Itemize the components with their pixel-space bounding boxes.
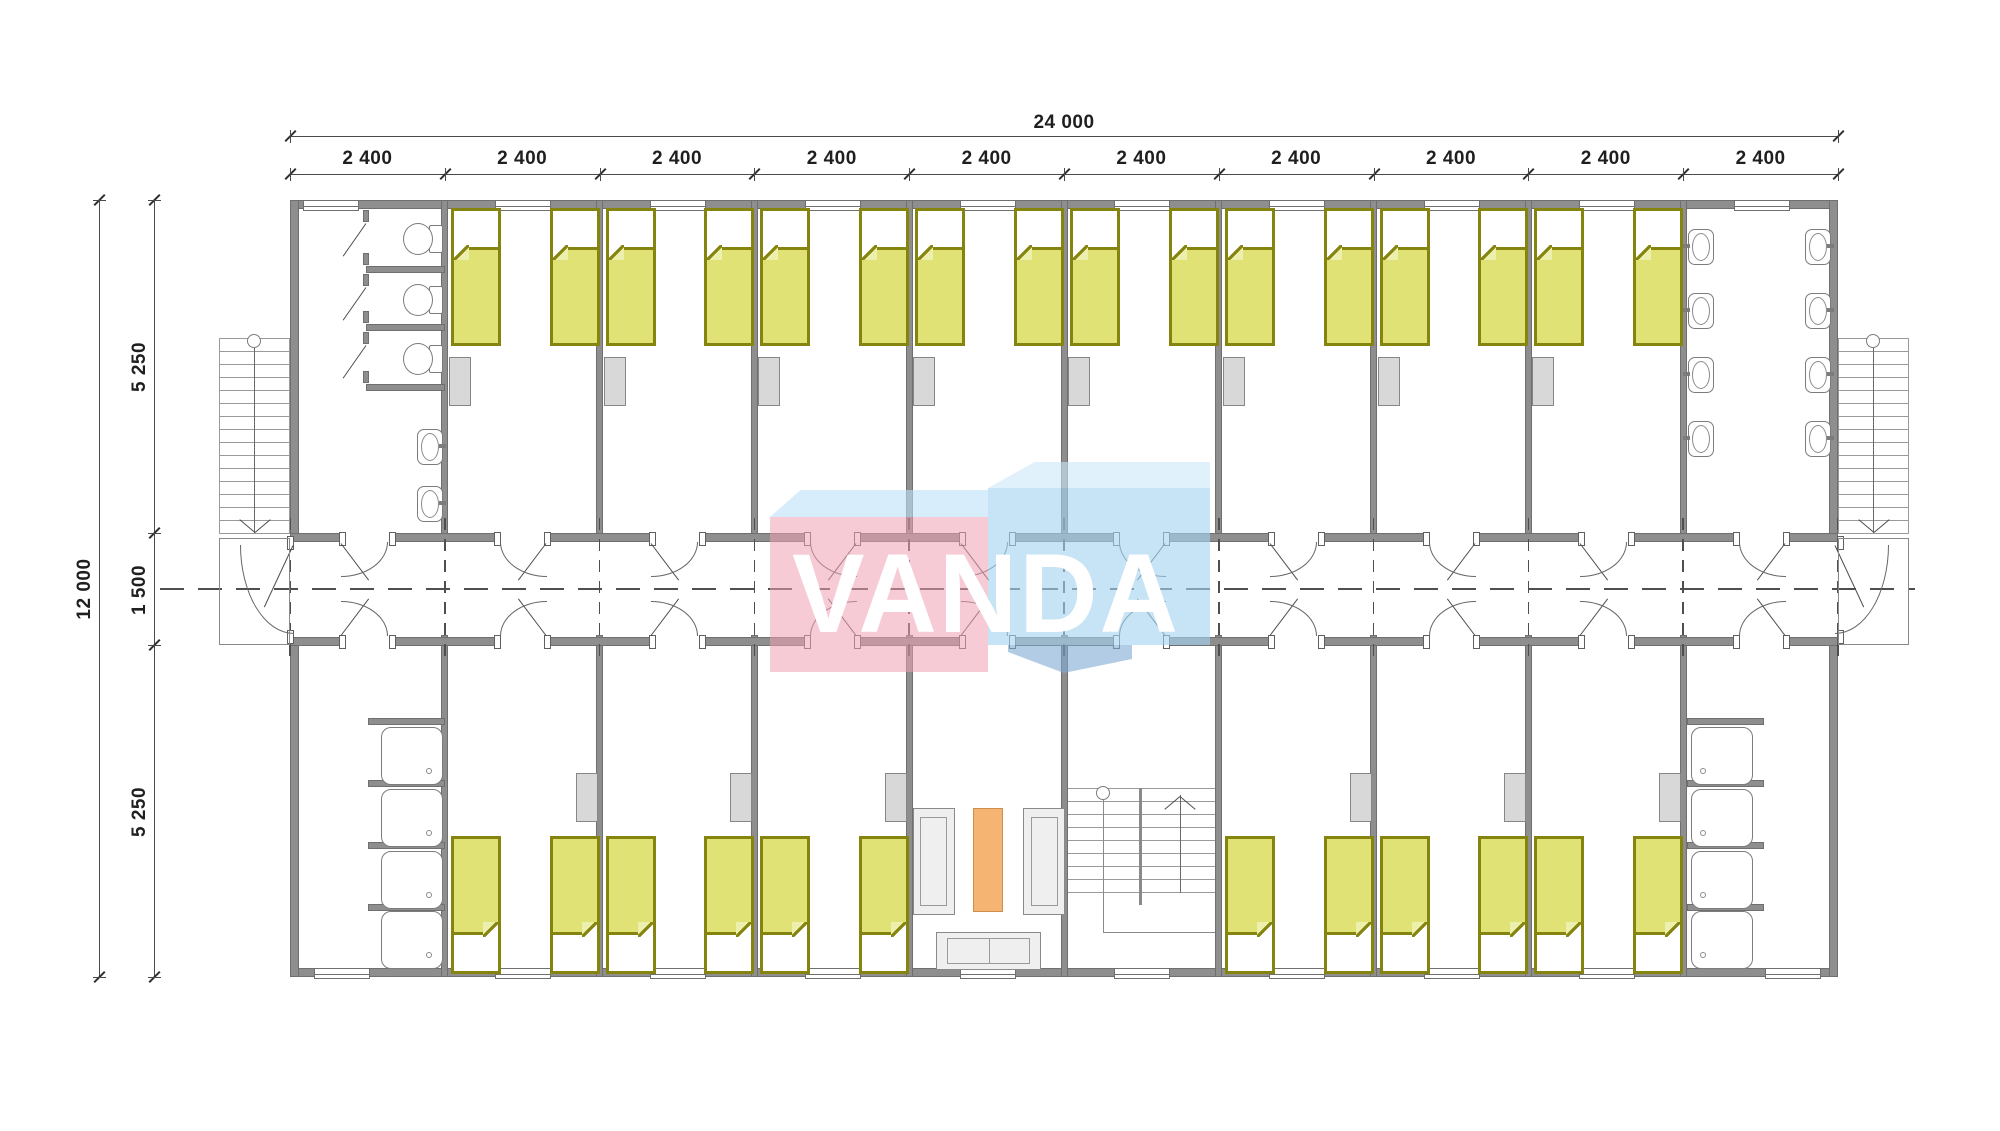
window-glass-line xyxy=(304,206,358,207)
dimension-stub xyxy=(148,977,161,978)
dimension-stub xyxy=(1219,168,1220,181)
basin-bowl xyxy=(421,490,439,518)
stair-arrow-shaft xyxy=(254,348,255,533)
window-glass-line xyxy=(1115,206,1169,207)
bed-pillow xyxy=(609,932,653,971)
bed-fold xyxy=(1537,245,1552,260)
wardrobe-icon xyxy=(730,773,752,822)
window-icon xyxy=(1579,200,1635,211)
basin-bowl xyxy=(1692,297,1710,325)
basin-faucet xyxy=(1827,244,1834,248)
door-jamb xyxy=(1318,532,1325,546)
dimension-stub xyxy=(1374,168,1375,181)
bed-icon xyxy=(704,208,754,346)
door-jamb xyxy=(544,635,551,649)
bed-fold xyxy=(1356,922,1371,937)
bed-fold xyxy=(763,245,778,260)
window-glass-line xyxy=(1270,206,1324,207)
stair-rail xyxy=(289,338,290,533)
dimension-stub xyxy=(1838,168,1839,181)
stair-arrow-head xyxy=(1164,796,1180,810)
bed-fold xyxy=(1566,922,1581,937)
shower-tray-icon xyxy=(1691,851,1753,909)
window-icon xyxy=(1765,968,1821,979)
wall xyxy=(290,533,341,542)
axis-crossline xyxy=(754,518,756,660)
wardrobe-icon xyxy=(758,357,780,406)
axis-crossline xyxy=(1373,518,1375,660)
dimension-label-segment: 2 400 xyxy=(1101,148,1181,170)
dimension-label-segment: 2 400 xyxy=(1411,148,1491,170)
bed-fold xyxy=(1327,245,1342,260)
stall-front-stub xyxy=(363,332,369,344)
bed-fold xyxy=(891,922,906,937)
bed-icon xyxy=(451,208,501,346)
basin-bowl xyxy=(1692,361,1710,389)
shower-tray-icon xyxy=(381,789,443,847)
bed-icon xyxy=(760,836,810,974)
wall xyxy=(1829,637,1838,977)
dimension-line xyxy=(290,136,1838,137)
dimension-stub xyxy=(290,130,291,143)
bed-fold xyxy=(1636,245,1651,260)
bed-pillow xyxy=(1228,932,1272,971)
dimension-label-seg-left: 1 500 xyxy=(129,545,151,635)
toilet-stall-wall xyxy=(366,324,445,331)
basin-bowl xyxy=(1809,425,1827,453)
shower-tray-icon xyxy=(1691,789,1753,847)
bed-fold xyxy=(454,245,469,260)
bed-icon xyxy=(859,208,909,346)
bed-icon xyxy=(1478,208,1528,346)
wardrobe-icon xyxy=(1068,357,1090,406)
axis-crossline xyxy=(444,518,446,660)
door-arc xyxy=(1270,542,1317,577)
basin-faucet xyxy=(439,444,446,448)
shower-partition xyxy=(1687,718,1764,725)
door-jamb xyxy=(1628,635,1635,649)
sofa-divider xyxy=(989,938,990,964)
bed-icon xyxy=(1534,836,1584,974)
shower-tray-icon xyxy=(381,911,443,969)
wall xyxy=(1215,635,1222,977)
bed-icon xyxy=(704,836,754,974)
bed-icon xyxy=(1169,208,1219,346)
basin-faucet xyxy=(439,501,446,505)
axis-crossline xyxy=(1528,518,1530,660)
window-glass-line xyxy=(1766,974,1820,975)
window-glass-line xyxy=(1115,974,1169,975)
bed-icon xyxy=(760,208,810,346)
bed-fold xyxy=(582,922,597,937)
bed-icon xyxy=(1633,836,1683,974)
door-arc xyxy=(1739,601,1786,636)
door-arc xyxy=(500,542,547,577)
dimension-stub xyxy=(93,200,106,201)
bed-fold xyxy=(918,245,933,260)
window-glass-line xyxy=(1425,974,1479,975)
window-glass-line xyxy=(651,206,705,207)
dimension-stub xyxy=(600,168,601,181)
window-icon xyxy=(303,200,359,211)
stair-tread xyxy=(219,533,290,534)
bed-pillow xyxy=(553,932,597,971)
shower-drain xyxy=(1700,830,1706,836)
dimension-label-segment: 2 400 xyxy=(482,148,562,170)
shower-tray-icon xyxy=(1691,727,1753,785)
bed-fold xyxy=(483,922,498,937)
stair-newel xyxy=(247,334,261,348)
wardrobe-icon xyxy=(576,773,598,822)
toilet-stall-wall xyxy=(366,266,445,273)
door-jamb xyxy=(1578,635,1585,649)
basin-icon xyxy=(1688,229,1714,265)
bed-fold xyxy=(862,245,877,260)
bed-fold xyxy=(1017,245,1032,260)
shower-drain xyxy=(1700,892,1706,898)
door-jamb xyxy=(699,532,706,546)
stair-arrow-head xyxy=(254,519,270,533)
window-icon xyxy=(960,200,1016,211)
stall-front-stub xyxy=(363,253,369,265)
window-icon xyxy=(805,200,861,211)
window-glass-line xyxy=(651,974,705,975)
shower-tray-icon xyxy=(381,727,443,785)
wardrobe-icon xyxy=(1350,773,1372,822)
window-icon xyxy=(495,968,551,979)
bed-fold xyxy=(1481,245,1496,260)
axis-crossline xyxy=(1682,518,1684,660)
door-jamb xyxy=(649,635,656,649)
bed-fold xyxy=(736,922,751,937)
stair-rail xyxy=(1103,800,1104,933)
basin-faucet xyxy=(1683,308,1690,312)
window-icon xyxy=(1734,200,1790,211)
bed-icon xyxy=(550,208,600,346)
bed-pillow xyxy=(763,932,807,971)
armchair-seat xyxy=(920,817,947,906)
stair-newel xyxy=(1866,334,1880,348)
bed-icon xyxy=(1380,836,1430,974)
bed-icon xyxy=(1324,208,1374,346)
stair-rail xyxy=(1103,932,1215,933)
entry-landing xyxy=(219,538,290,645)
bed-icon xyxy=(606,836,656,974)
basin-icon xyxy=(1688,357,1714,393)
bed-fold xyxy=(1665,922,1680,937)
stair-arrow-head xyxy=(1858,519,1874,533)
dimension-stub xyxy=(754,168,755,181)
bed-fold xyxy=(638,922,653,937)
window-glass-line xyxy=(315,974,369,975)
window-icon xyxy=(1424,200,1480,211)
wardrobe-icon xyxy=(449,357,471,406)
bed-icon xyxy=(1633,208,1683,346)
stair-arrow-head xyxy=(239,519,255,533)
basin-bowl xyxy=(1809,233,1827,261)
window-glass-line xyxy=(1735,206,1789,207)
basin-faucet xyxy=(1683,244,1690,248)
axis-crossline xyxy=(1218,518,1220,660)
door-arc xyxy=(1270,601,1317,636)
bed-icon xyxy=(550,836,600,974)
bed-icon xyxy=(1225,836,1275,974)
shower-drain xyxy=(1700,952,1706,958)
window-glass-line xyxy=(961,206,1015,207)
bed-pillow xyxy=(1383,932,1427,971)
basin-bowl xyxy=(1809,297,1827,325)
stall-front-stub xyxy=(363,274,369,286)
basin-faucet xyxy=(1683,436,1690,440)
dimension-label-segment: 2 400 xyxy=(327,148,407,170)
stair-divider xyxy=(1139,788,1142,905)
watermark-box-pink-top xyxy=(770,490,988,517)
shower-drain xyxy=(426,768,432,774)
stall-door-leaf xyxy=(343,223,367,256)
dimension-label-segment: 2 400 xyxy=(1256,148,1336,170)
door-arc xyxy=(1429,601,1476,636)
stair-arrow-head xyxy=(1873,519,1889,533)
door-jamb xyxy=(1268,635,1275,649)
window-glass-line xyxy=(496,206,550,207)
door-arc xyxy=(1580,601,1627,636)
wardrobe-icon xyxy=(885,773,907,822)
bed-pillow xyxy=(1537,932,1581,971)
window-icon xyxy=(650,968,706,979)
stair-rail xyxy=(1838,338,1839,533)
dimension-stub xyxy=(93,977,106,978)
door-arc xyxy=(1739,542,1786,577)
window-glass-line xyxy=(806,206,860,207)
dimension-line xyxy=(99,200,100,977)
dimension-stub xyxy=(1838,130,1839,143)
window-glass-line xyxy=(496,974,550,975)
stair-rail xyxy=(219,338,220,533)
bed-fold xyxy=(1383,245,1398,260)
dimension-label-segment: 2 400 xyxy=(637,148,717,170)
dimension-stub xyxy=(445,168,446,181)
wall xyxy=(1785,637,1838,646)
dimension-label-seg-left: 5 250 xyxy=(129,767,151,857)
dimension-stub xyxy=(1683,168,1684,181)
stall-front-stub xyxy=(363,311,369,323)
bed-icon xyxy=(1380,208,1430,346)
shower-tray-icon xyxy=(1691,911,1753,969)
toilet-bowl-icon xyxy=(403,343,433,375)
bed-fold xyxy=(553,245,568,260)
stair-arrow-shaft xyxy=(1180,795,1181,893)
window-glass-line xyxy=(1580,206,1634,207)
window-icon xyxy=(650,200,706,211)
wall xyxy=(1061,635,1068,977)
bed-fold xyxy=(707,245,722,260)
wall xyxy=(290,637,341,646)
bed-fold xyxy=(1228,245,1243,260)
dimension-stub xyxy=(1064,168,1065,181)
stall-front-stub xyxy=(363,210,369,222)
door-jamb xyxy=(1423,635,1430,649)
window-icon xyxy=(805,968,861,979)
basin-faucet xyxy=(1827,372,1834,376)
coffee-table xyxy=(973,808,1003,912)
stair-tread xyxy=(1838,533,1909,534)
floor-plan: VANDA 24 0002 4002 4002 4002 4002 4002 4… xyxy=(0,0,2000,1131)
wardrobe-icon xyxy=(1378,357,1400,406)
bed-icon xyxy=(1478,836,1528,974)
window-glass-line xyxy=(806,974,860,975)
wall xyxy=(290,637,299,977)
bed-fold xyxy=(792,922,807,937)
window-glass-line xyxy=(1270,974,1324,975)
watermark-box-blue-top xyxy=(988,462,1210,488)
window-icon xyxy=(495,200,551,211)
bed-fold xyxy=(1412,922,1427,937)
bed-icon xyxy=(1324,836,1374,974)
stair-newel xyxy=(1096,786,1110,800)
dimension-stub xyxy=(1528,168,1529,181)
door-jamb xyxy=(389,635,396,649)
door-arc xyxy=(1429,542,1476,577)
dimension-stub xyxy=(148,645,161,646)
bed-fold xyxy=(1073,245,1088,260)
shower-drain xyxy=(426,830,432,836)
shower-drain xyxy=(1700,768,1706,774)
door-jamb xyxy=(494,635,501,649)
window-icon xyxy=(314,968,370,979)
door-jamb xyxy=(1628,532,1635,546)
shower-drain xyxy=(426,952,432,958)
wardrobe-icon xyxy=(604,357,626,406)
bed-icon xyxy=(1070,208,1120,346)
basin-icon xyxy=(1688,293,1714,329)
door-jamb xyxy=(1733,635,1740,649)
door-arc xyxy=(1580,542,1627,577)
door-arc xyxy=(341,601,388,636)
bed-pillow xyxy=(1481,932,1525,971)
wall xyxy=(290,200,299,542)
dimension-label-segment: 2 400 xyxy=(792,148,872,170)
wardrobe-icon xyxy=(913,357,935,406)
toilet-bowl-icon xyxy=(403,284,433,316)
wall xyxy=(1785,533,1838,542)
stair-arrow-head xyxy=(1180,796,1196,810)
window-icon xyxy=(1424,968,1480,979)
window-glass-line xyxy=(1425,206,1479,207)
window-icon xyxy=(1114,200,1170,211)
door-jamb xyxy=(699,635,706,649)
stall-front-stub xyxy=(363,371,369,383)
shower-tray-icon xyxy=(381,851,443,909)
stair-arrow-shaft xyxy=(1873,348,1874,533)
dimension-label-segment: 2 400 xyxy=(947,148,1027,170)
door-jamb xyxy=(389,532,396,546)
dimension-stub xyxy=(148,200,161,201)
window-icon xyxy=(1114,968,1170,979)
door-arc xyxy=(651,542,698,577)
shower-drain xyxy=(426,892,432,898)
basin-bowl xyxy=(1692,233,1710,261)
basin-bowl xyxy=(421,433,439,461)
armchair-icon xyxy=(1023,808,1065,915)
bed-pillow xyxy=(1327,932,1371,971)
dimension-stub xyxy=(909,168,910,181)
bed-icon xyxy=(859,836,909,974)
dimension-label-total: 24 000 xyxy=(1004,112,1124,134)
entry-landing xyxy=(1838,538,1909,645)
bed-icon xyxy=(606,208,656,346)
door-jamb xyxy=(1783,635,1790,649)
shower-partition xyxy=(368,718,445,725)
dimension-line xyxy=(154,200,155,977)
basin-icon xyxy=(1688,421,1714,457)
door-jamb xyxy=(339,635,346,649)
dimension-label-segment: 2 400 xyxy=(1566,148,1646,170)
window-icon xyxy=(1269,968,1325,979)
basin-bowl xyxy=(1809,361,1827,389)
bed-pillow xyxy=(454,932,498,971)
watermark-text: VANDA xyxy=(792,538,1180,650)
toilet-bowl-icon xyxy=(403,223,433,255)
dimension-stub xyxy=(290,168,291,181)
door-jamb xyxy=(1318,635,1325,649)
bed-pillow xyxy=(707,932,751,971)
stair-rail xyxy=(1908,338,1909,533)
bed-fold xyxy=(1257,922,1272,937)
bed-pillow xyxy=(1636,932,1680,971)
basin-faucet xyxy=(1827,436,1834,440)
armchair-seat xyxy=(1031,817,1058,906)
axis-crossline xyxy=(599,518,601,660)
window-icon xyxy=(1579,968,1635,979)
dimension-label-segment: 2 400 xyxy=(1721,148,1801,170)
bed-icon xyxy=(1014,208,1064,346)
window-icon xyxy=(1269,200,1325,211)
dimension-label-seg-left: 5 250 xyxy=(129,322,151,412)
basin-faucet xyxy=(1827,308,1834,312)
bed-pillow xyxy=(862,932,906,971)
door-arc xyxy=(341,542,388,577)
dimension-stub xyxy=(148,533,161,534)
bed-icon xyxy=(1534,208,1584,346)
door-arc xyxy=(500,601,547,636)
toilet-stall-wall xyxy=(366,384,445,391)
bed-fold xyxy=(1172,245,1187,260)
bed-icon xyxy=(451,836,501,974)
bed-icon xyxy=(915,208,965,346)
door-arc xyxy=(651,601,698,636)
basin-faucet xyxy=(1683,372,1690,376)
dimension-label-total-left: 12 000 xyxy=(74,544,96,634)
basin-bowl xyxy=(1692,425,1710,453)
sofa-icon xyxy=(936,932,1041,970)
bed-fold xyxy=(1510,922,1525,937)
window-glass-line xyxy=(961,974,1015,975)
door-jamb xyxy=(1473,635,1480,649)
wardrobe-icon xyxy=(1532,357,1554,406)
window-glass-line xyxy=(1580,974,1634,975)
wardrobe-icon xyxy=(1223,357,1245,406)
wardrobe-icon xyxy=(1504,773,1526,822)
bed-icon xyxy=(1225,208,1275,346)
armchair-icon xyxy=(913,808,955,915)
bed-fold xyxy=(609,245,624,260)
wardrobe-icon xyxy=(1659,773,1681,822)
